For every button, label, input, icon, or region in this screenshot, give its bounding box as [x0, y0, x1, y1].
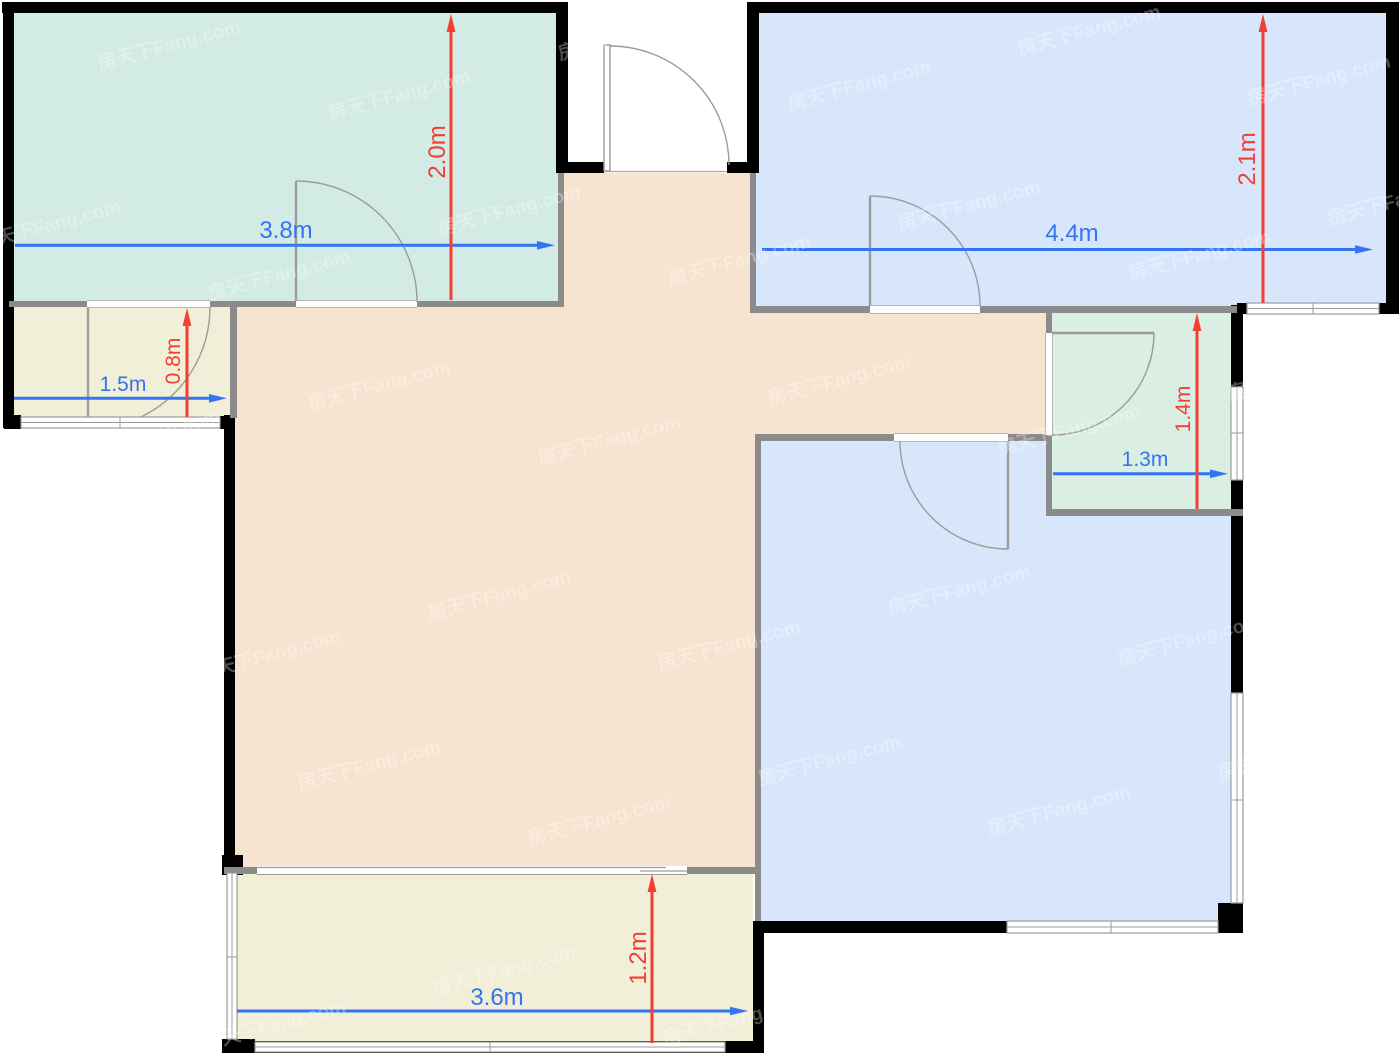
- svg-text:4.4m: 4.4m: [1045, 220, 1098, 247]
- svg-text:1.5m: 1.5m: [100, 373, 147, 396]
- svg-text:1.2m: 1.2m: [625, 931, 652, 984]
- svg-text:2.1m: 2.1m: [1234, 132, 1261, 185]
- svg-text:0.8m: 0.8m: [162, 338, 185, 385]
- svg-text:1.4m: 1.4m: [1172, 386, 1195, 433]
- svg-text:1.3m: 1.3m: [1122, 448, 1169, 471]
- svg-text:3.8m: 3.8m: [259, 217, 312, 244]
- svg-text:2.0m: 2.0m: [424, 125, 451, 178]
